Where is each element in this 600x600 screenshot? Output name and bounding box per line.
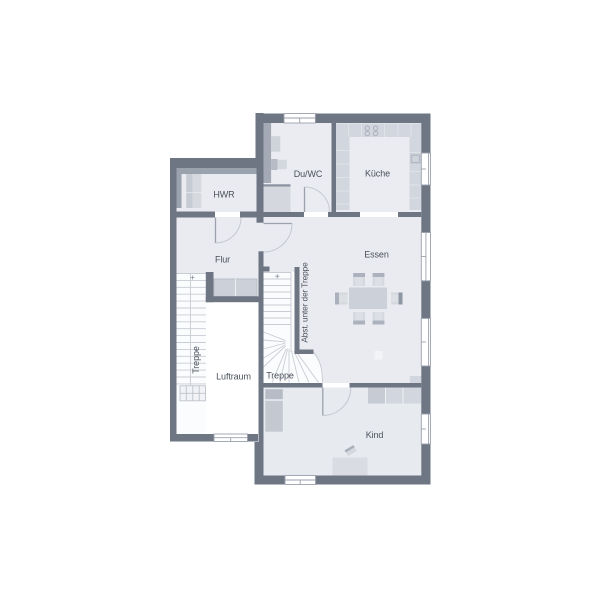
svg-text:Du/WC: Du/WC [294, 169, 323, 179]
svg-text:HWR: HWR [213, 190, 235, 200]
svg-text:Treppe: Treppe [191, 346, 201, 374]
svg-text:Küche: Küche [365, 169, 390, 179]
svg-text:Treppe: Treppe [266, 371, 294, 381]
svg-text:Kind: Kind [366, 430, 384, 440]
svg-text:Essen: Essen [364, 250, 389, 260]
svg-text:Flur: Flur [215, 255, 230, 265]
svg-text:Abst. unter der Treppe: Abst. unter der Treppe [300, 262, 310, 343]
svg-text:Luftraum: Luftraum [216, 372, 251, 382]
